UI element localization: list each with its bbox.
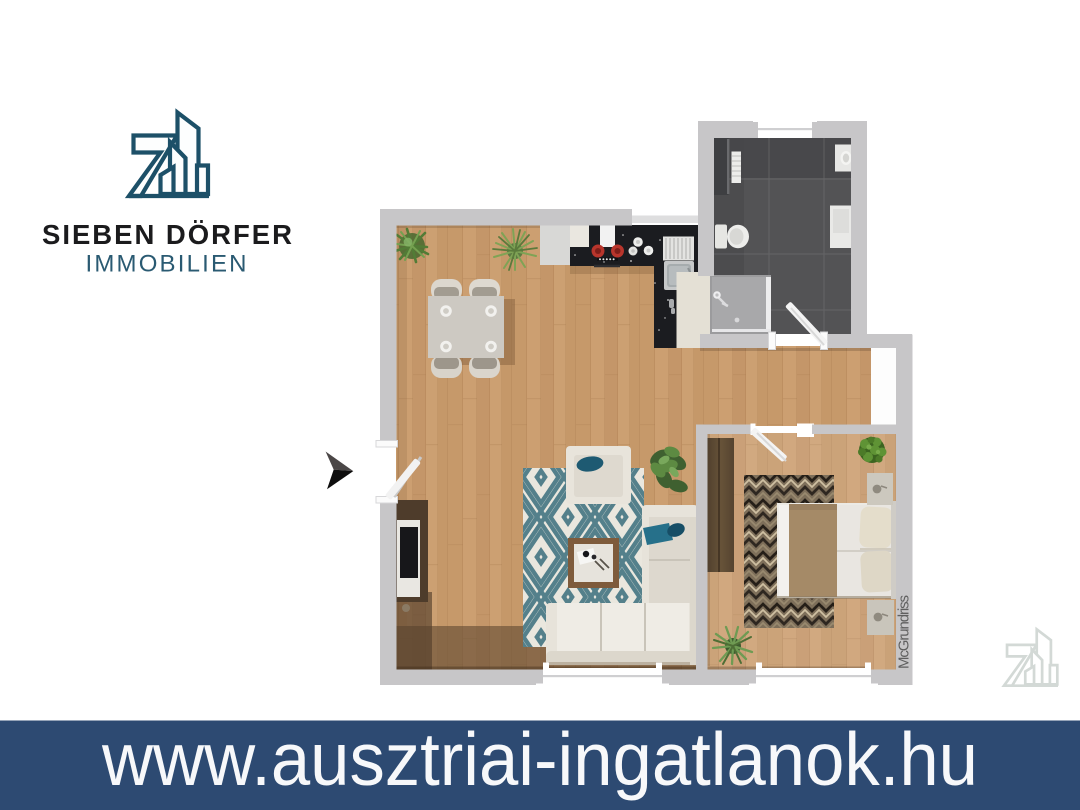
svg-text:www.ausztriai-ingatlanok.hu: www.ausztriai-ingatlanok.hu — [101, 717, 978, 801]
svg-text:SIEBEN DÖRFER: SIEBEN DÖRFER — [42, 219, 292, 250]
svg-text:McGrundriss: McGrundriss — [896, 595, 913, 669]
svg-text:IMMOBILIEN: IMMOBILIEN — [86, 251, 247, 278]
